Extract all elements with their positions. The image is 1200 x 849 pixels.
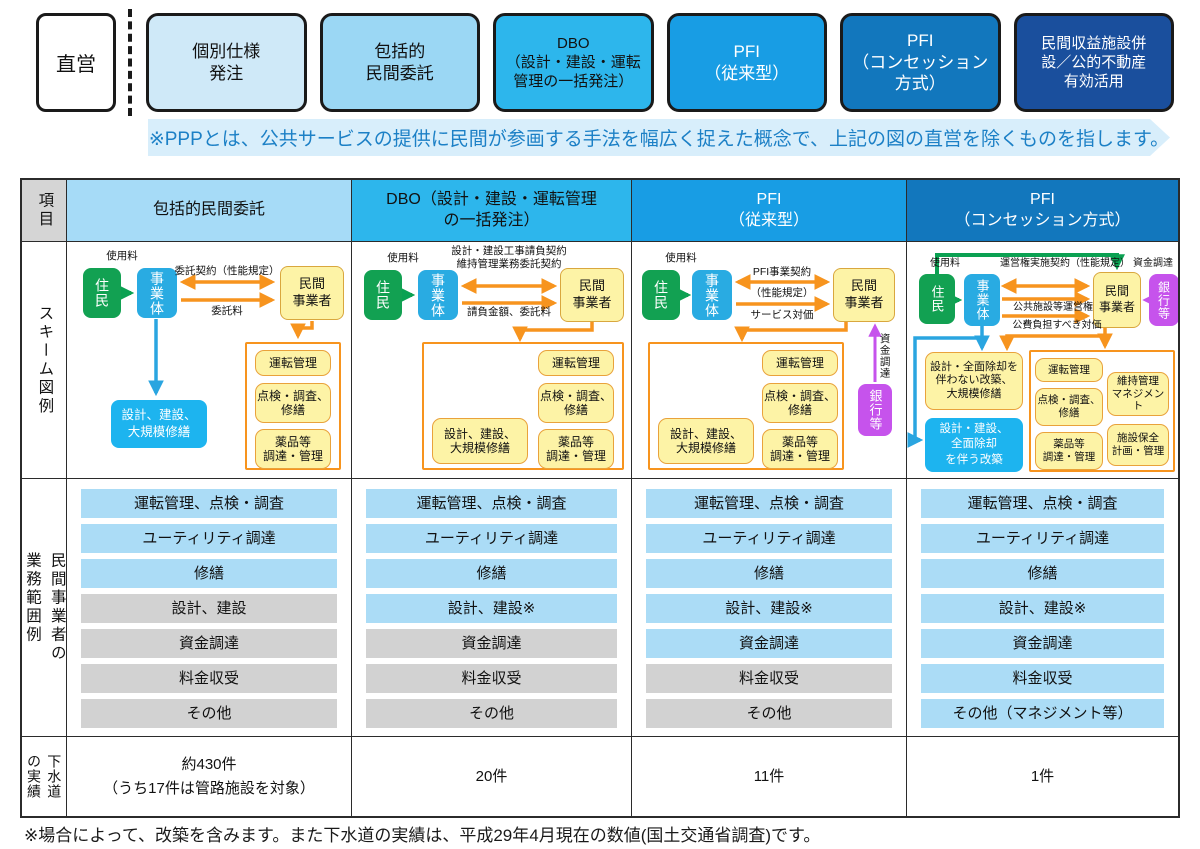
public-design-box: 設計、建設、 大規模修繕 xyxy=(111,400,207,448)
row-label-scheme: スキーム図例 xyxy=(22,242,67,479)
task-chemicals: 薬品等 調達・管理 xyxy=(1035,432,1103,470)
ppp-spectrum-row: 直営 個別仕様 発注 包括的 民間委託 DBO （設計・建設・運転 管理の一括発… xyxy=(36,13,1174,112)
scope-item: 設計、建設※ xyxy=(921,594,1164,623)
bank-box: 銀行等 xyxy=(858,384,892,436)
scope-item: ユーティリティ調達 xyxy=(81,524,337,553)
direct-management-box: 直営 xyxy=(36,13,116,112)
task-inspection: 点検・調査、 修繕 xyxy=(538,383,614,423)
result-dbo: 20件 xyxy=(352,737,632,816)
scope-item: その他 xyxy=(81,699,337,728)
scope-item: 修繕 xyxy=(646,559,892,588)
payment-label: 委託料 xyxy=(187,305,267,318)
scope-item: 料金収受 xyxy=(646,664,892,693)
payment-label: サービス対価 xyxy=(722,309,842,322)
scheme-dbo: 住民 事業体 民間 事業者 使用料 設計・建設工事請負契約 維持管理業務委託契約… xyxy=(352,242,632,479)
ppp-box-dbo: DBO （設計・建設・運転 管理の一括発注） xyxy=(493,13,654,112)
scope-item: その他 xyxy=(646,699,892,728)
scope-item: 修繕 xyxy=(366,559,617,588)
scope-item: 運転管理、点検・調査 xyxy=(646,489,892,518)
scope-item: 資金調達 xyxy=(921,629,1164,658)
fee-label: 使用料 xyxy=(917,258,973,270)
scheme-houkatsu: 住民 事業体 民間 事業者 使用料 委託契約（性能規定） 委託料 運転管理 点検… xyxy=(67,242,352,479)
task-chemicals: 薬品等 調達・管理 xyxy=(255,429,331,469)
scope-item: 料金収受 xyxy=(81,664,337,693)
payment-label: 請負金額、委託料 xyxy=(449,306,569,319)
result-pfi-concession: 1件 xyxy=(907,737,1178,816)
task-operation: 運転管理 xyxy=(255,350,331,376)
result-pfi-conventional: 11件 xyxy=(632,737,907,816)
row-label-scope: 民間事業者の 業務範囲例 xyxy=(22,479,67,737)
scheme-row-label: スキーム図例 xyxy=(32,305,57,416)
scope-item: その他 xyxy=(366,699,617,728)
scope-item: その他（マネジメント等） xyxy=(921,699,1164,728)
task-chemicals: 薬品等 調達・管理 xyxy=(762,429,838,469)
scope-item: 運転管理、点検・調査 xyxy=(366,489,617,518)
scheme-comparison-table: 項目 包括的民間委託 DBO（設計・建設・運転管理 の一括発注） PFI （従来… xyxy=(20,178,1180,818)
scope-houkatsu: 運転管理、点検・調査 ユーティリティ調達 修繕 設計、建設 資金調達 料金収受 … xyxy=(67,479,352,737)
scheme-pfi-concession: 住民 事業体 民間 事業者 銀行等 使用料 運営権実施契約（性能規定） 資金調達… xyxy=(907,242,1178,479)
ppp-diagram-page: 直営 個別仕様 発注 包括的 民間委託 DBO （設計・建設・運転 管理の一括発… xyxy=(0,0,1200,849)
spec-label: （性能規定） xyxy=(722,287,842,300)
scope-item: 料金収受 xyxy=(366,664,617,693)
ppp-boundary-dashed-line xyxy=(128,9,132,116)
scope-item: 修繕 xyxy=(81,559,337,588)
private-company-box: 民間 事業者 xyxy=(833,268,895,322)
row-label-results: 下水道 の実績 xyxy=(22,737,67,816)
private-company-box: 民間 事業者 xyxy=(560,268,624,322)
task-operation: 運転管理 xyxy=(1035,358,1103,382)
scope-dbo: 運転管理、点検・調査 ユーティリティ調達 修繕 設計、建設※ 資金調達 料金収受… xyxy=(352,479,632,737)
header-col-dbo: DBO（設計・建設・運転管理 の一括発注） xyxy=(352,180,632,242)
scope-item: 資金調達 xyxy=(81,629,337,658)
scope-item: 資金調達 xyxy=(646,629,892,658)
scope-item: ユーティリティ調達 xyxy=(366,524,617,553)
fee-label: 使用料 xyxy=(87,250,157,263)
resident-box: 住民 xyxy=(83,268,121,318)
ppp-box-private-revenue-facility: 民間収益施設併 設／公的不動産 有効活用 xyxy=(1014,13,1175,112)
result-houkatsu: 約430件 （うち17件は管路施設を対象） xyxy=(67,737,352,816)
task-operation: 運転管理 xyxy=(538,350,614,376)
header-col-concession: PFI （コンセッション方式） xyxy=(907,180,1178,242)
scope-item: 設計、建設 xyxy=(81,594,337,623)
task-chemicals: 薬品等 調達・管理 xyxy=(538,429,614,469)
resident-box: 住民 xyxy=(919,274,955,324)
private-company-box: 民間 事業者 xyxy=(280,266,344,320)
task-design-build: 設計、建設、 大規模修繕 xyxy=(432,418,528,464)
scope-item: 運転管理、点検・調査 xyxy=(921,489,1164,518)
results-row-label: 下水道 の実績 xyxy=(24,754,65,799)
header-item: 項目 xyxy=(22,180,67,242)
scope-row-label: 民間事業者の 業務範囲例 xyxy=(19,552,69,663)
scope-item: 運転管理、点検・調査 xyxy=(81,489,337,518)
scope-item: 設計、建設※ xyxy=(366,594,617,623)
ppp-box-comprehensive-outsourcing: 包括的 民間委託 xyxy=(320,13,481,112)
header-col-pfi: PFI （従来型） xyxy=(632,180,907,242)
scope-item: 修繕 xyxy=(921,559,1164,588)
task-inspection: 点検・調査、 修繕 xyxy=(1035,388,1103,426)
resident-box: 住民 xyxy=(642,270,680,320)
fee-label: 使用料 xyxy=(646,252,716,265)
task-operation: 運転管理 xyxy=(762,350,838,376)
ppp-definition-banner: ※PPPとは、公共サービスの提供に民間が参画する手法を幅広く捉えた概念で、上記の… xyxy=(148,119,1170,156)
contract-label: PFI事業契約 xyxy=(722,266,842,279)
ppp-box-individual-spec: 個別仕様 発注 xyxy=(146,13,307,112)
contract-label: 委託契約（性能規定） xyxy=(167,265,287,278)
header-col-houkatsu: 包括的民間委託 xyxy=(67,180,352,242)
bank-box: 銀行等 xyxy=(1149,274,1178,326)
rebuild-without-removal-box: 設計・全面除却を 伴わない改築、 大規模修繕 xyxy=(925,352,1023,410)
scope-item: ユーティリティ調達 xyxy=(921,524,1164,553)
fee-label: 使用料 xyxy=(368,252,438,265)
operator-box: 事業体 xyxy=(964,274,1000,326)
task-maintenance-management: 維持管理 マネジメント xyxy=(1107,372,1169,416)
task-inspection: 点検・調査、 修繕 xyxy=(255,383,331,423)
task-facility-preservation: 施設保全 計画・管理 xyxy=(1107,424,1169,466)
contract-label: 設計・建設工事請負契約 維持管理業務委託契約 xyxy=(444,245,574,270)
ppp-box-pfi-conventional: PFI （従来型） xyxy=(667,13,828,112)
finance-label: 資金調達 xyxy=(878,332,891,380)
operation-right-label: 公共施設等運営権 xyxy=(1003,302,1103,314)
scope-pfi-conventional: 運転管理、点検・調査 ユーティリティ調達 修繕 設計、建設※ 資金調達 料金収受… xyxy=(632,479,907,737)
finance-label: 資金調達 xyxy=(1125,258,1178,270)
scope-item: ユーティリティ調達 xyxy=(646,524,892,553)
ppp-box-pfi-concession: PFI （コンセッション 方式） xyxy=(840,13,1001,112)
header-item-label: 項目 xyxy=(32,192,57,229)
task-design-build: 設計、建設、 大規模修繕 xyxy=(658,418,754,464)
contract-label: 運営権実施契約（性能規定） xyxy=(985,258,1145,270)
footnote: ※場合によって、改築を含みます。また下水道の実績は、平成29年4月現在の数値(国… xyxy=(24,821,820,846)
public-cost-label: 公費負担すべき対価 xyxy=(1003,320,1111,332)
scope-item: 設計、建設※ xyxy=(646,594,892,623)
task-inspection: 点検・調査、 修繕 xyxy=(762,383,838,423)
scope-item: 料金収受 xyxy=(921,664,1164,693)
scheme-pfi-conventional: 住民 事業体 民間 事業者 銀行等 使用料 PFI事業契約 （性能規定） サービ… xyxy=(632,242,907,479)
scope-item: 資金調達 xyxy=(366,629,617,658)
ppp-method-boxes: 個別仕様 発注 包括的 民間委託 DBO （設計・建設・運転 管理の一括発注） … xyxy=(146,13,1174,112)
scope-pfi-concession: 運転管理、点検・調査 ユーティリティ調達 修繕 設計、建設※ 資金調達 料金収受… xyxy=(907,479,1178,737)
resident-box: 住民 xyxy=(364,270,402,320)
rebuild-with-removal-box: 設計・建設、 全面除却 を伴う改築 xyxy=(925,418,1023,472)
